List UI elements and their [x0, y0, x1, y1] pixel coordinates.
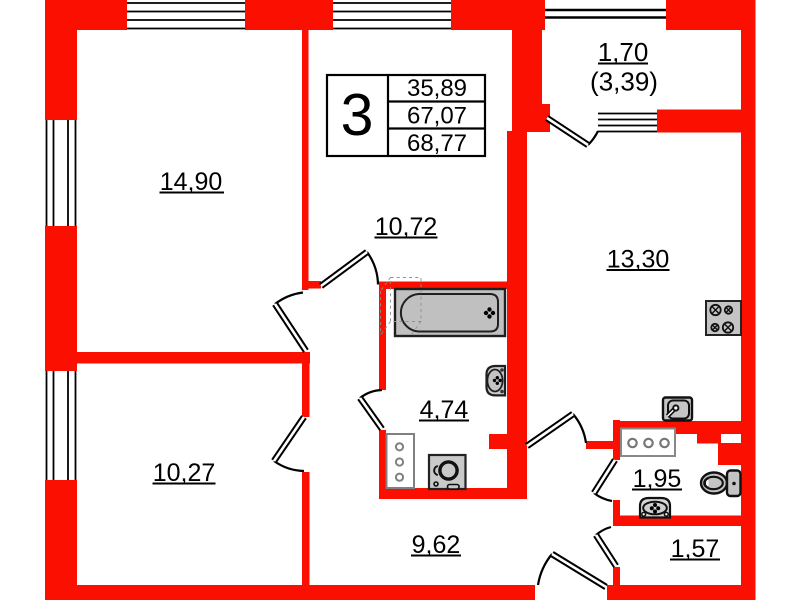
- svg-text:(3,39): (3,39): [590, 67, 658, 97]
- svg-text:68,77: 68,77: [407, 130, 467, 157]
- svg-text:67,07: 67,07: [407, 103, 467, 130]
- svg-text:3: 3: [341, 82, 374, 148]
- svg-text:35,89: 35,89: [407, 75, 467, 102]
